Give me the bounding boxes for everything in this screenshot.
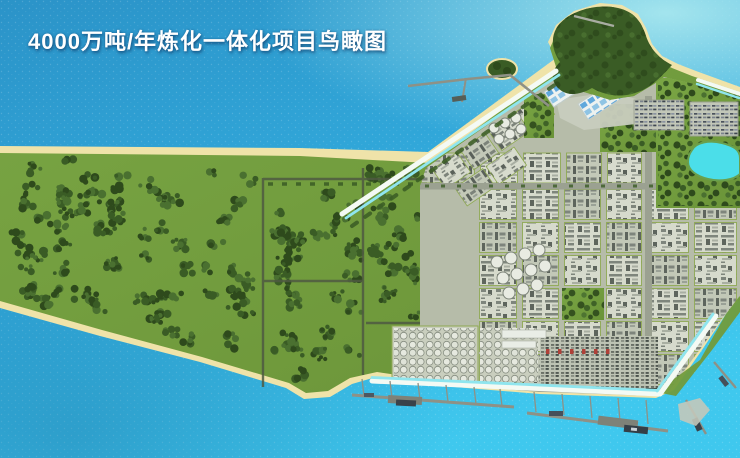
image-title: 4000万吨/年炼化一体化项目鸟瞰图: [28, 24, 387, 56]
aerial-view-image: 4000万吨/年炼化一体化项目鸟瞰图: [0, 0, 740, 458]
tank-farm-west: [392, 326, 478, 384]
parking-lot: [634, 100, 684, 130]
container-yard: [540, 336, 658, 388]
northeast-green-parcel: [656, 78, 740, 208]
aerial-scene: [0, 0, 740, 458]
lagoon-pond: [688, 142, 740, 181]
